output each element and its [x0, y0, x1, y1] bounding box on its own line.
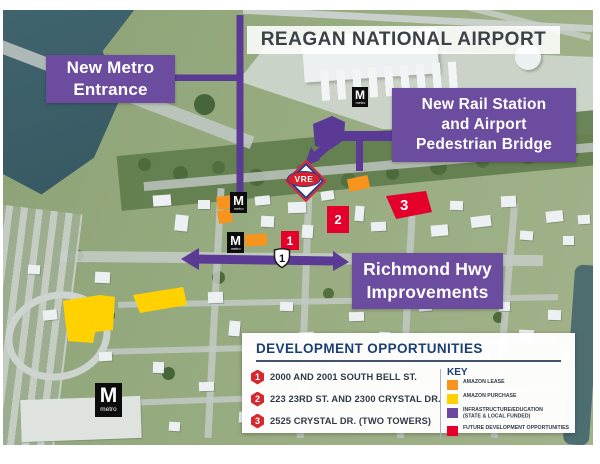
map-aerial-view: 1 2 3 1 M metro M metro	[3, 10, 593, 445]
key-row-amazon-lease: AMAZON LEASE	[447, 379, 593, 392]
legend-item-label: 2525 CRYSTAL DR. (TWO TOWERS)	[270, 416, 431, 426]
callout-line: and Airport	[392, 115, 576, 135]
key-row-infrastructure: INFRASTRUCTURE/EDUCATION (STATE & LOCAL …	[447, 407, 593, 424]
metro-station-logo: M metro	[230, 192, 247, 213]
metro-m: M	[95, 383, 122, 406]
legend-title: DEVELOPMENT OPPORTUNITIES	[256, 341, 561, 356]
richmond-hwy-arrow-shaft	[195, 259, 335, 261]
infographic-page: 1 2 3 1 M metro M metro	[0, 0, 600, 464]
legend-item-3: 3 2525 CRYSTAL DR. (TWO TOWERS)	[251, 410, 440, 432]
route-shield-number: 1	[279, 253, 285, 265]
callout-richmond-hwy: Richmond Hwy Improvements	[352, 253, 503, 309]
key-label: AMAZON LEASE	[463, 379, 505, 385]
richmond-hwy-arrow-head-left	[181, 248, 199, 270]
metro-label: metro	[231, 247, 240, 251]
key-title: KEY	[447, 367, 593, 378]
color-swatch	[447, 426, 458, 436]
color-swatch	[447, 408, 458, 418]
callout-new-metro-entrance: New Metro Entrance	[46, 55, 175, 103]
site-marker-hexagon: 3	[251, 414, 264, 429]
site-marker-hexagon: 1	[251, 370, 264, 385]
legend-item-1: 1 2000 AND 2001 SOUTH BELL ST.	[251, 366, 440, 388]
metro-m: M	[352, 87, 368, 101]
legend-items: 1 2000 AND 2001 SOUTH BELL ST. 2 223 23R…	[242, 366, 440, 439]
legend-item-label: 2000 AND 2001 SOUTH BELL ST.	[270, 372, 417, 382]
legend-item-label: 223 23RD ST. AND 2300 CRYSTAL DR.	[270, 394, 441, 404]
key-label: AMAZON PURCHASE	[463, 393, 516, 399]
metro-station-logo: M metro	[227, 232, 244, 253]
key-label: FUTURE DEVELOPMENT OPPORTUNITIES	[463, 425, 569, 431]
metro-label: metro	[234, 207, 243, 211]
vre-station-logo: VRE	[282, 159, 326, 199]
color-swatch	[447, 380, 458, 390]
metro-m: M	[230, 192, 247, 207]
legend-vertical-divider	[440, 369, 441, 439]
key-label-line1: INFRASTRUCTURE/EDUCATION	[463, 407, 543, 413]
color-swatch	[447, 394, 458, 404]
vre-text: VRE	[287, 171, 321, 187]
key-row-amazon-purchase: AMAZON PURCHASE	[447, 393, 593, 406]
metro-m: M	[227, 232, 244, 247]
site-marker-hexagon: 2	[251, 392, 264, 407]
key-row-future-dev: FUTURE DEVELOPMENT OPPORTUNITIES	[447, 425, 593, 438]
legend-key: KEY AMAZON LEASE AMAZON PURCHASE INFRAST…	[447, 366, 593, 439]
key-label: INFRASTRUCTURE/EDUCATION (STATE & LOCAL …	[463, 407, 543, 419]
metro-station-logo: M metro	[352, 87, 368, 107]
metro-label: metro	[98, 406, 120, 412]
legend-panel: DEVELOPMENT OPPORTUNITIES 1 2000 AND 200…	[242, 333, 575, 433]
callout-line: New Rail Station	[392, 95, 576, 115]
callout-line: Entrance	[46, 79, 175, 101]
callout-line: Richmond Hwy	[352, 258, 503, 281]
callout-line: Pedestrian Bridge	[392, 135, 576, 155]
pedestrian-bridge-shape	[338, 131, 395, 141]
title-banner: REAGAN NATIONAL AIRPORT	[247, 26, 560, 54]
metro-entrance-connector-line	[237, 15, 244, 194]
metro-label: metro	[356, 101, 365, 105]
key-label-line2: (STATE & LOCAL FUNDED)	[463, 413, 530, 419]
metro-station-logo-large: M metro	[95, 383, 122, 417]
pedestrian-bridge-shape	[356, 140, 363, 171]
callout-line: New Metro	[46, 57, 175, 79]
legend-item-2: 2 223 23RD ST. AND 2300 CRYSTAL DR.	[251, 388, 440, 410]
callout-line: Improvements	[352, 281, 503, 304]
metro-entrance-connector-line	[175, 75, 242, 82]
richmond-hwy-arrow-head-right	[333, 251, 349, 271]
callout-new-rail-station: New Rail Station and Airport Pedestrian …	[392, 88, 576, 162]
